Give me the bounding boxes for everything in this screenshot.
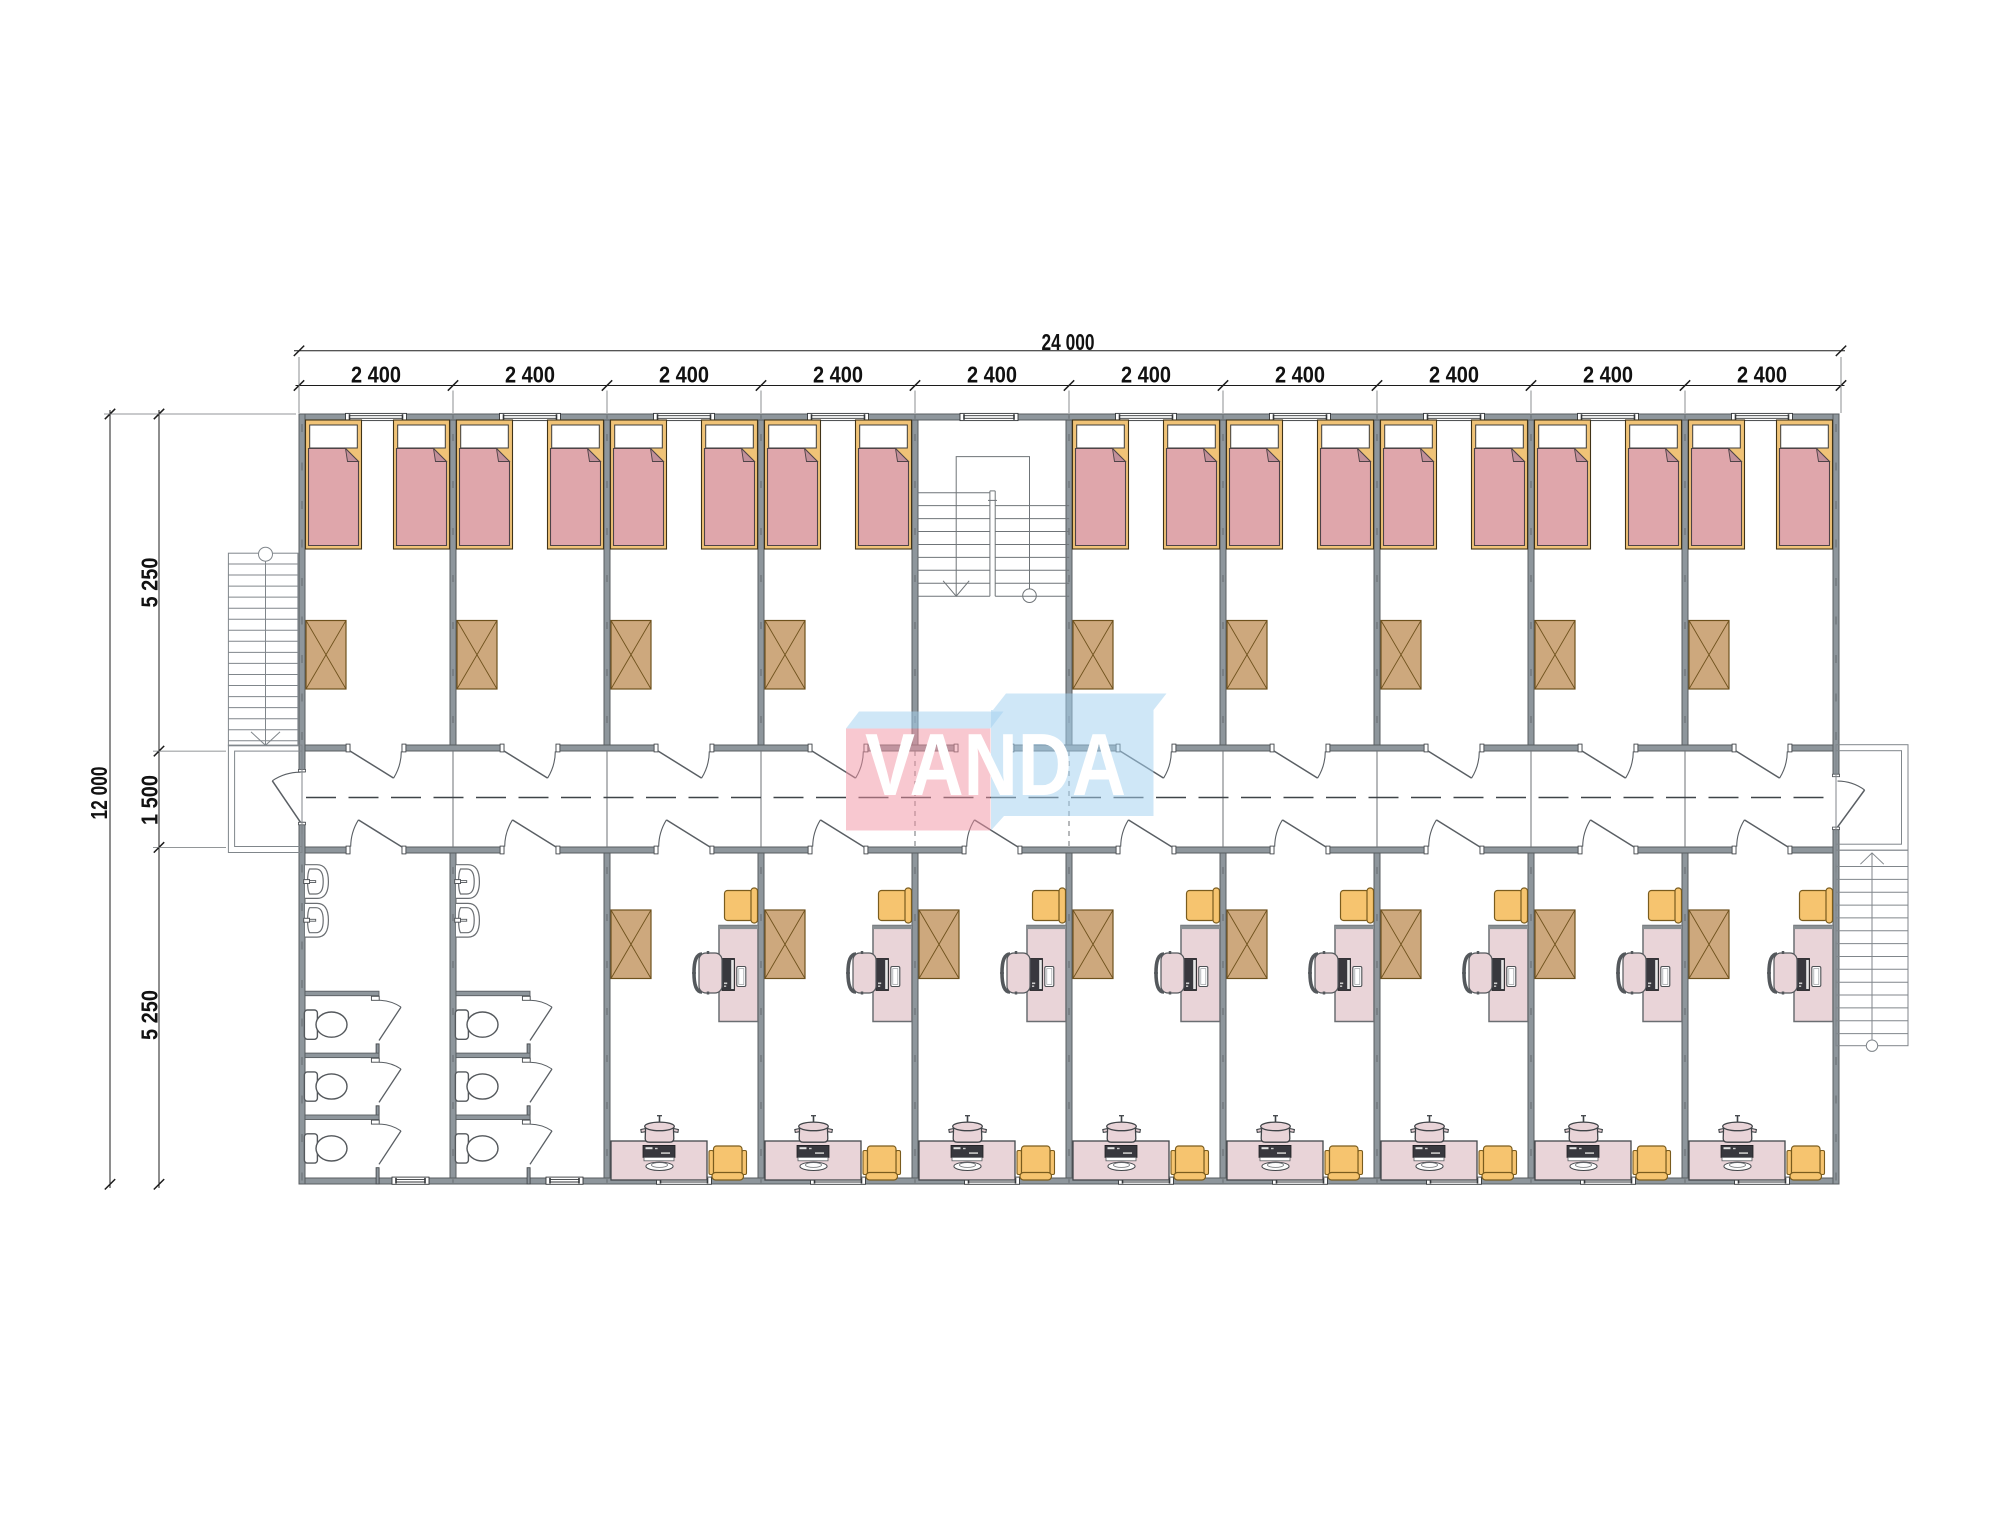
svg-text:2 400: 2 400 bbox=[967, 362, 1017, 388]
svg-text:2 400: 2 400 bbox=[1121, 362, 1171, 388]
svg-text:12 000: 12 000 bbox=[86, 767, 112, 820]
svg-text:VANDA: VANDA bbox=[865, 715, 1126, 814]
svg-text:2 400: 2 400 bbox=[1275, 362, 1325, 388]
svg-text:24 000: 24 000 bbox=[1042, 329, 1095, 355]
svg-text:1 500: 1 500 bbox=[137, 775, 163, 825]
svg-text:5 250: 5 250 bbox=[137, 558, 163, 608]
svg-text:2 400: 2 400 bbox=[351, 362, 401, 388]
svg-text:2 400: 2 400 bbox=[1429, 362, 1479, 388]
svg-text:5 250: 5 250 bbox=[137, 990, 163, 1040]
svg-text:2 400: 2 400 bbox=[813, 362, 863, 388]
svg-text:2 400: 2 400 bbox=[1737, 362, 1787, 388]
svg-text:2 400: 2 400 bbox=[659, 362, 709, 388]
svg-text:2 400: 2 400 bbox=[1583, 362, 1633, 388]
svg-text:2 400: 2 400 bbox=[505, 362, 555, 388]
